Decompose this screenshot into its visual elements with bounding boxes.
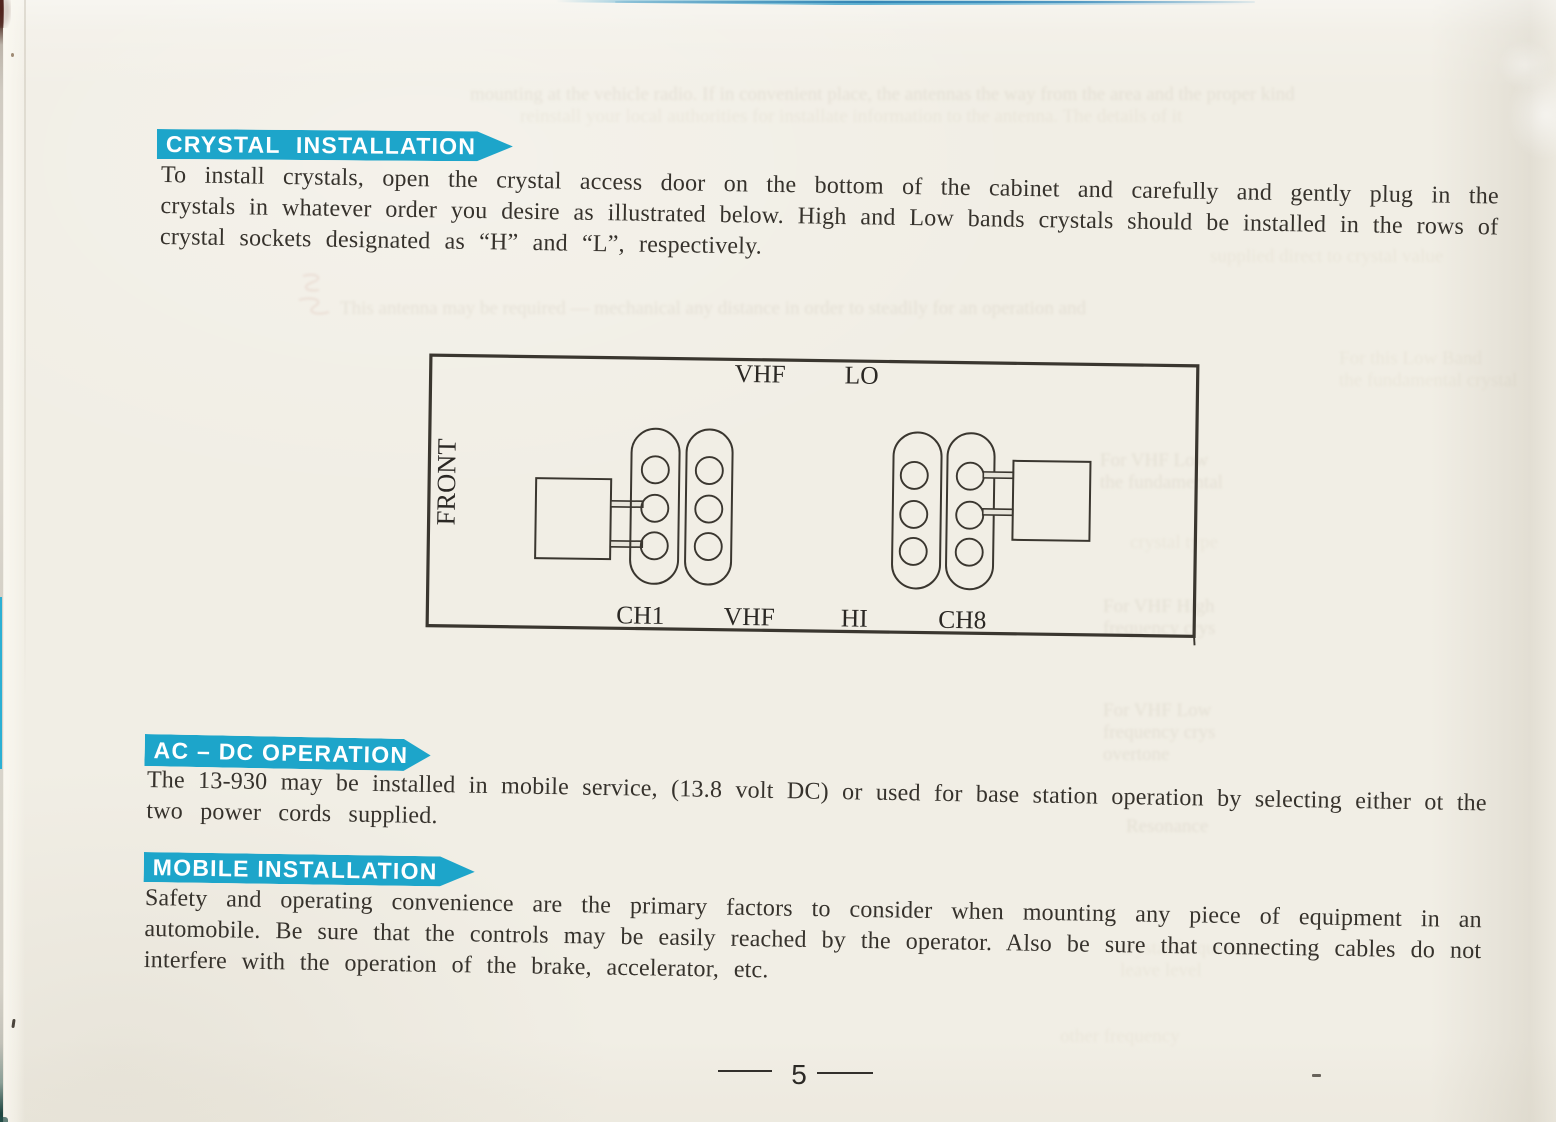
svg-text:CH1: CH1 bbox=[616, 600, 665, 630]
svg-text:FRONT: FRONT bbox=[431, 438, 462, 525]
svg-text:LO: LO bbox=[844, 360, 878, 389]
svg-text:HI: HI bbox=[841, 603, 868, 632]
svg-text:VHF: VHF bbox=[724, 602, 775, 632]
svg-text:VHF: VHF bbox=[734, 359, 785, 389]
svg-text:CH8: CH8 bbox=[938, 605, 987, 635]
